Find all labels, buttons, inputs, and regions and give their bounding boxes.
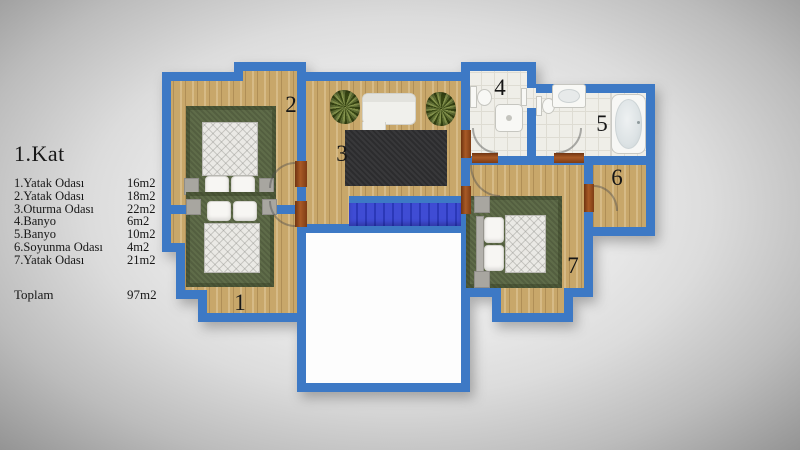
bathtub-drain xyxy=(637,121,640,124)
bed-room-2 xyxy=(202,122,258,176)
room-1-floor-patch xyxy=(176,214,185,243)
plant xyxy=(426,92,456,126)
door-bathroom-4 xyxy=(472,153,498,163)
sink-basin xyxy=(558,89,580,103)
room-number-4: 4 xyxy=(489,75,511,101)
door-bedroom-7 xyxy=(461,186,471,214)
room-number-2: 2 xyxy=(280,92,302,118)
nightstand xyxy=(186,199,201,215)
bed-headboard xyxy=(476,216,484,272)
sofa-backrest xyxy=(363,94,415,102)
stairwell-void xyxy=(297,224,470,392)
room-number-1: 1 xyxy=(229,290,251,316)
pillow xyxy=(207,201,231,221)
bathroom-passage xyxy=(527,88,536,108)
nightstand xyxy=(474,271,490,288)
floor-plan: 1 2 3 4 5 6 7 xyxy=(0,0,800,450)
room-number-6: 6 xyxy=(606,165,628,191)
page-background: { "title": "1.Kat", "legend": { "items":… xyxy=(0,0,800,450)
room-number-7: 7 xyxy=(562,253,584,279)
rug-living-room xyxy=(345,130,447,186)
nightstand xyxy=(474,196,490,213)
room-number-3: 3 xyxy=(331,141,353,167)
bed-room-7 xyxy=(505,215,546,273)
bed-room-1 xyxy=(204,223,260,273)
door-bathroom-5 xyxy=(554,153,584,163)
bathtub-basin xyxy=(615,99,642,149)
plant xyxy=(330,90,360,124)
room-2-wall-notch xyxy=(234,62,306,81)
door-leaf-white xyxy=(521,88,527,106)
door-bedroom-2 xyxy=(295,161,307,187)
pillow xyxy=(233,201,257,221)
pillow xyxy=(484,245,504,271)
toilet-tank xyxy=(470,86,477,108)
staircase xyxy=(349,196,461,226)
door-bedroom-1 xyxy=(295,201,307,227)
pillow xyxy=(484,217,504,243)
room-number-5: 5 xyxy=(591,111,613,137)
door-hall xyxy=(461,130,471,158)
shower-drain xyxy=(506,115,512,121)
door-dressing-room xyxy=(584,184,594,212)
room-7-bay xyxy=(492,288,573,322)
